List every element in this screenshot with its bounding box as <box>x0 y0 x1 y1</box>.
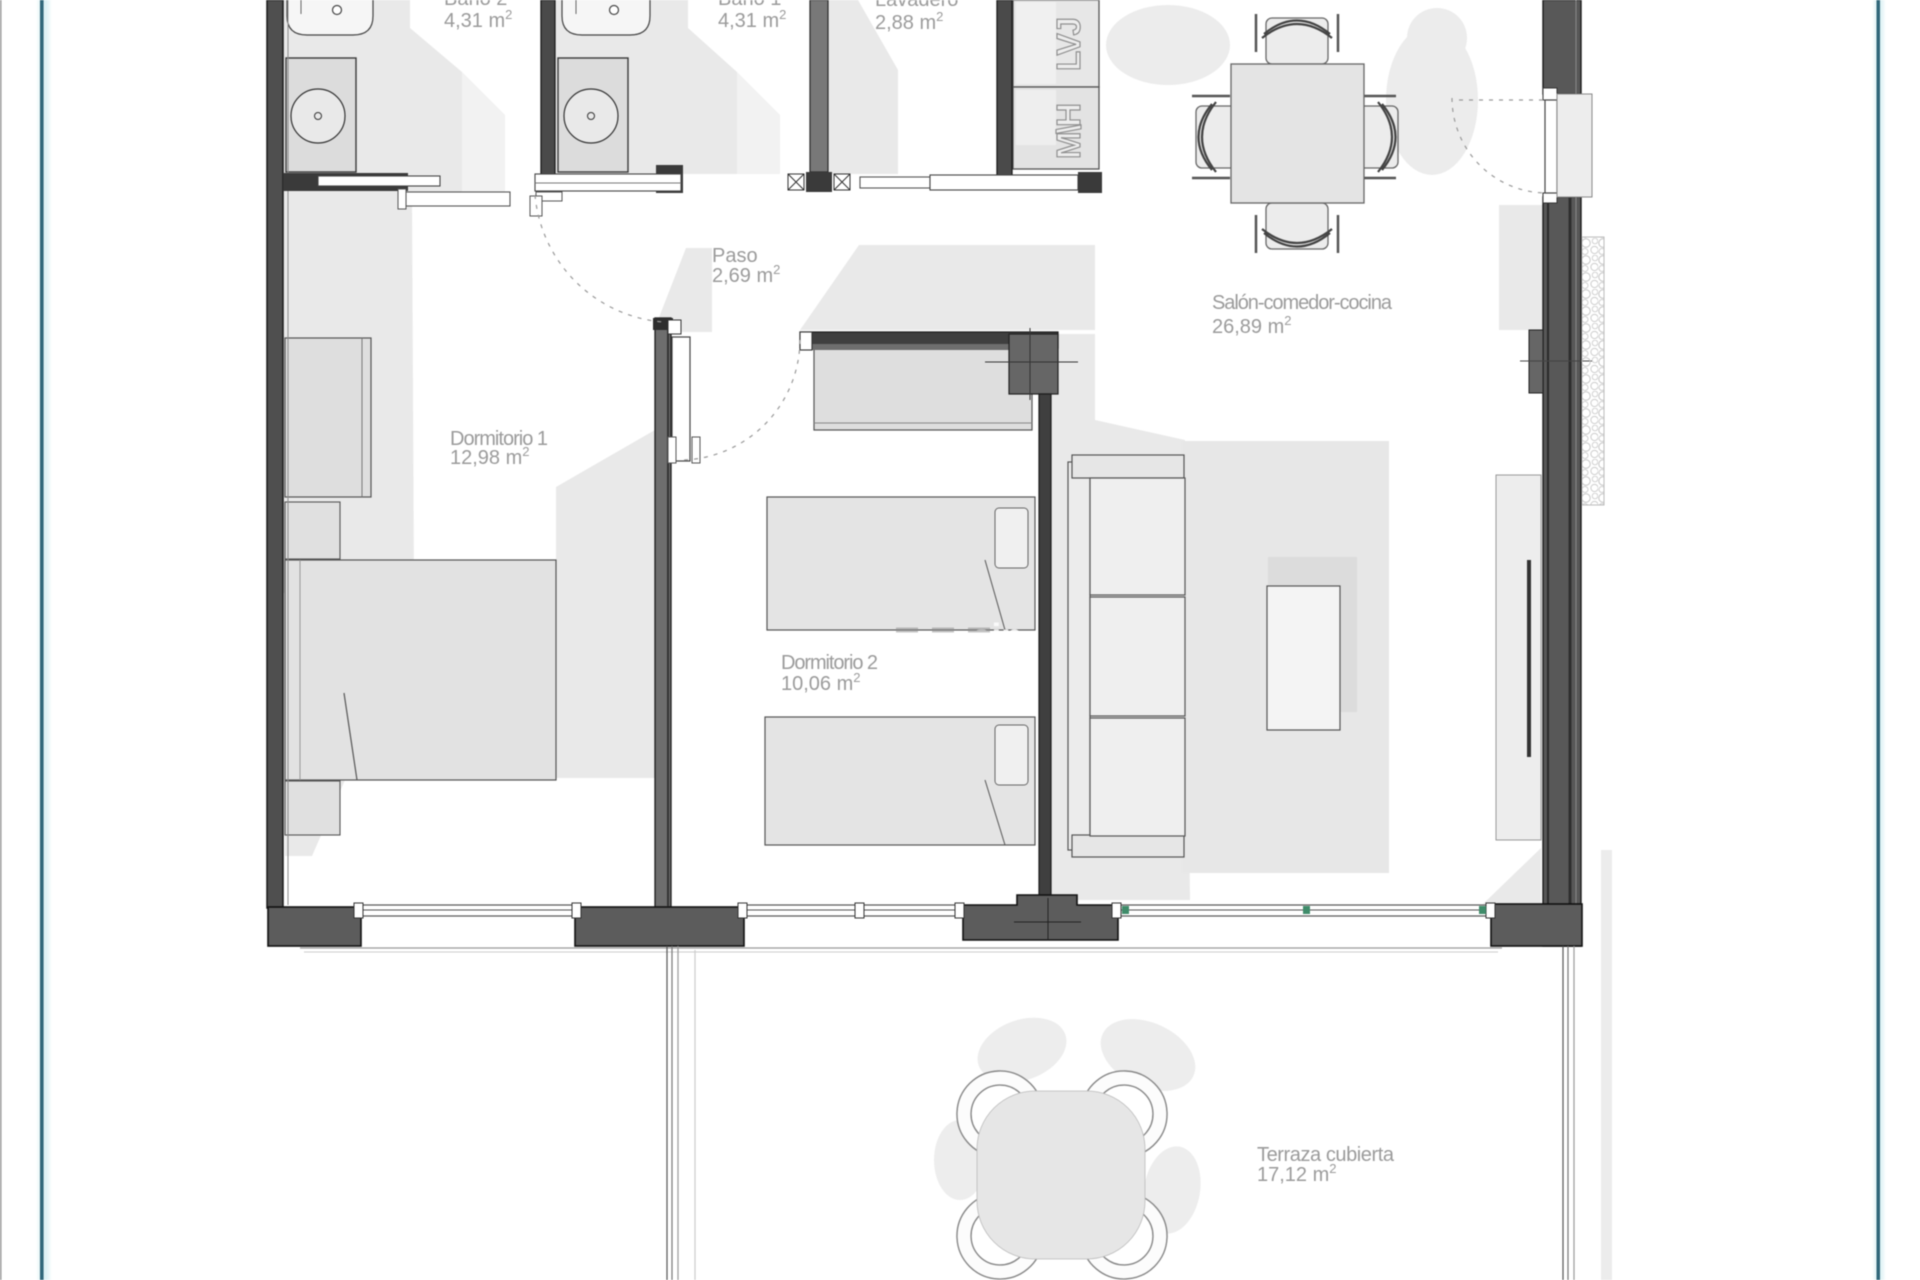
svg-text:M\H: M\H <box>1050 103 1087 159</box>
svg-text:Lavadero: Lavadero <box>875 0 958 11</box>
svg-text:Dormitorio 2: Dormitorio 2 <box>781 652 878 674</box>
svg-text:Baño 1: Baño 1 <box>718 0 781 10</box>
svg-text:26,89 m2: 26,89 m2 <box>1212 313 1292 338</box>
svg-text:10,06 m2: 10,06 m2 <box>781 670 861 695</box>
svg-text:Paso: Paso <box>712 245 758 267</box>
svg-text:Baño 2: Baño 2 <box>444 0 507 10</box>
svg-text:2,88 m2: 2,88 m2 <box>875 9 943 34</box>
svg-text:ain: ain <box>972 617 1023 656</box>
svg-text:Terraza cubierta: Terraza cubierta <box>1257 1144 1395 1166</box>
svg-text:LVJ: LVJ <box>1050 17 1087 71</box>
svg-text:17,12 m2: 17,12 m2 <box>1257 1161 1337 1186</box>
svg-text:12,98 m2: 12,98 m2 <box>450 444 530 469</box>
svg-text:2,69 m2: 2,69 m2 <box>712 262 780 287</box>
svg-text:Salón-comedor-cocina: Salón-comedor-cocina <box>1212 292 1393 314</box>
svg-text:4,31 m2: 4,31 m2 <box>444 7 512 32</box>
svg-text:4,31 m2: 4,31 m2 <box>718 7 786 32</box>
